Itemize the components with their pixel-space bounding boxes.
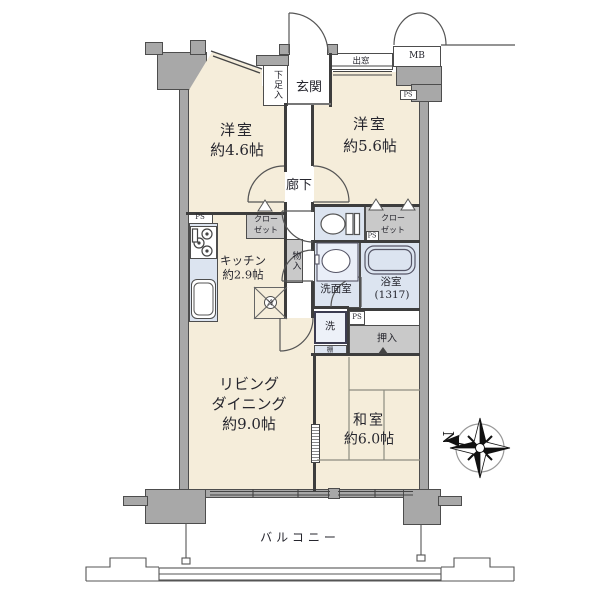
wall-bottomright-pillar bbox=[404, 490, 440, 524]
diagonal-window bbox=[211, 51, 262, 73]
wall-ld-washitsu-upper bbox=[313, 356, 316, 425]
wall-toilet-bottom bbox=[311, 240, 420, 243]
western-room-1-size: 約4.6帖 bbox=[210, 142, 264, 159]
closet-left-line1: クロー bbox=[254, 216, 278, 225]
wall-washer-right bbox=[347, 309, 349, 355]
entrance-door-arc bbox=[289, 13, 328, 53]
north-label: N bbox=[439, 431, 457, 444]
futon-closet-label: 押入 bbox=[377, 334, 397, 345]
wall-corridor-left-lower bbox=[284, 202, 287, 318]
wall-bottomleft-wing bbox=[124, 497, 147, 505]
balcony-label: バルコニー bbox=[260, 531, 340, 544]
wall-corridor-right-lower bbox=[311, 281, 314, 318]
wall-topleft-tab2 bbox=[191, 41, 205, 54]
wall-bottomleft-pillar bbox=[146, 490, 205, 523]
fusuma-sliding-door bbox=[311, 424, 320, 463]
wall-bottom bbox=[188, 490, 420, 497]
wall-genkan-right bbox=[329, 53, 332, 107]
wall-bottomright-wing bbox=[439, 497, 461, 505]
bay-window-label: 出窓 bbox=[352, 57, 369, 66]
wall-topleft-block bbox=[158, 53, 206, 89]
bathroom-label: 浴室 bbox=[381, 277, 402, 289]
living-dining-size: 約9.0帖 bbox=[222, 416, 276, 433]
wall-corridor-right-upper bbox=[311, 103, 314, 166]
ps-bath-label: PS bbox=[352, 314, 362, 322]
japanese-room-label: 和室 bbox=[353, 413, 385, 428]
wall-corridor-left-upper bbox=[284, 103, 287, 172]
meter-box-label: MB bbox=[409, 52, 425, 62]
toilet-room bbox=[314, 206, 365, 242]
wall-entrance-jamb-left bbox=[280, 45, 289, 54]
wall-ld-washitsu-lower bbox=[313, 462, 316, 491]
closet-right-line1: クロー bbox=[381, 215, 405, 224]
living-floor-extension bbox=[287, 318, 314, 490]
wall-entrance-left-bar bbox=[257, 56, 288, 65]
entrance-label: 玄関 bbox=[296, 81, 322, 95]
refrigerator-label: 冷 bbox=[267, 299, 274, 306]
western-room-2-size: 約5.6帖 bbox=[343, 138, 397, 155]
wall-topright-block1 bbox=[397, 67, 441, 85]
kitchen-label: キッチン bbox=[220, 255, 266, 268]
ps-kitchen-label: PS bbox=[195, 214, 205, 222]
hallway-label: 廊下 bbox=[286, 179, 312, 193]
washing-machine-label: 洗 bbox=[325, 322, 335, 333]
wall-corridor-right-mid2 bbox=[311, 242, 314, 251]
japanese-room-size: 約6.0帖 bbox=[344, 432, 394, 447]
shelf-label: 棚 bbox=[327, 346, 334, 353]
washroom-area bbox=[314, 242, 360, 308]
wall-right bbox=[420, 88, 428, 490]
kitchen-sink-box bbox=[191, 279, 216, 319]
compass: N bbox=[439, 418, 510, 478]
meter-box-doors bbox=[394, 13, 515, 45]
wall-wetzone-top bbox=[311, 204, 420, 207]
western-room-1-label: 洋室 bbox=[220, 122, 254, 139]
washroom-label: 洗面室 bbox=[320, 284, 352, 296]
stove-box bbox=[190, 226, 217, 259]
genkan-step-line bbox=[288, 103, 331, 105]
closet-right-line2: ゼット bbox=[381, 227, 405, 236]
living-dining-label-1: リビング bbox=[219, 376, 279, 393]
kitchen-size: 約2.9帖 bbox=[222, 269, 263, 282]
storage-closet-label: 物入 bbox=[290, 251, 300, 271]
living-dining-label-2: ダイニング bbox=[211, 396, 286, 413]
shoe-cabinet-label: 下足入 bbox=[271, 70, 281, 100]
closet-left-line2: ゼット bbox=[254, 227, 278, 236]
wall-topleft-tab1 bbox=[146, 43, 162, 54]
floor-plan: N 洋室 約4.6帖 洋室 約5.6帖 玄関 下足入 出窓 MB 廊下 PS P… bbox=[0, 0, 600, 600]
wall-left bbox=[180, 88, 188, 490]
ps-closet-right-label: PS bbox=[368, 232, 377, 239]
wall-bath-bottom bbox=[347, 308, 420, 311]
wall-balcony-center-stub bbox=[329, 489, 339, 498]
western-room-2-label: 洋室 bbox=[353, 116, 387, 133]
bathroom-size: (1317) bbox=[375, 290, 410, 302]
wall-washroom-bottom bbox=[311, 306, 349, 309]
north-arrow: N bbox=[439, 431, 471, 447]
ps-topright-label: PS bbox=[404, 91, 413, 98]
